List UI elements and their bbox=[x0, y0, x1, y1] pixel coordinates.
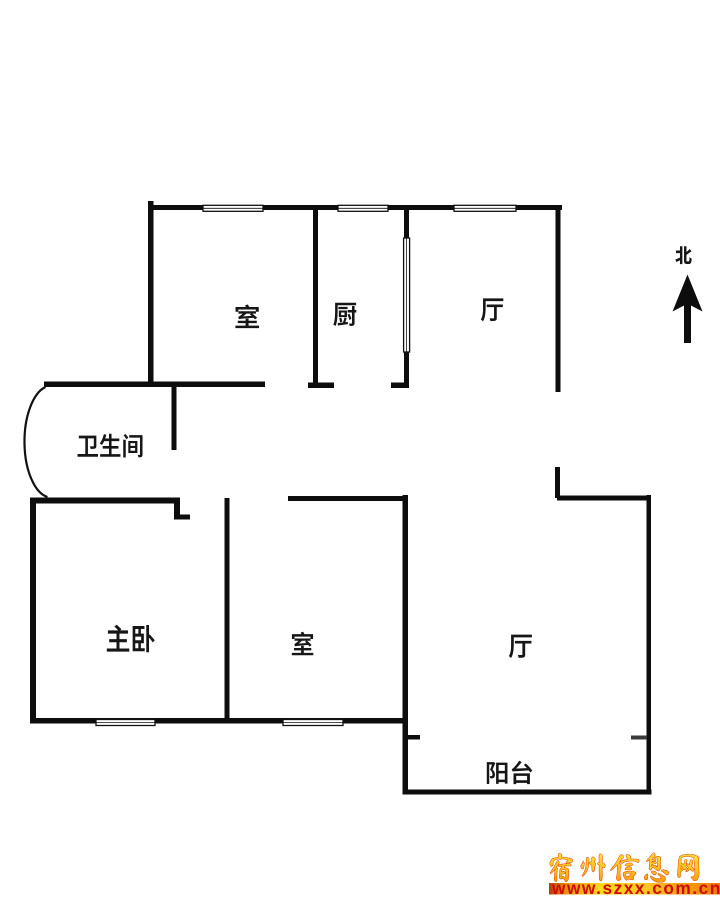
svg-text:www.szxx.com.cn: www.szxx.com.cn bbox=[551, 878, 720, 898]
